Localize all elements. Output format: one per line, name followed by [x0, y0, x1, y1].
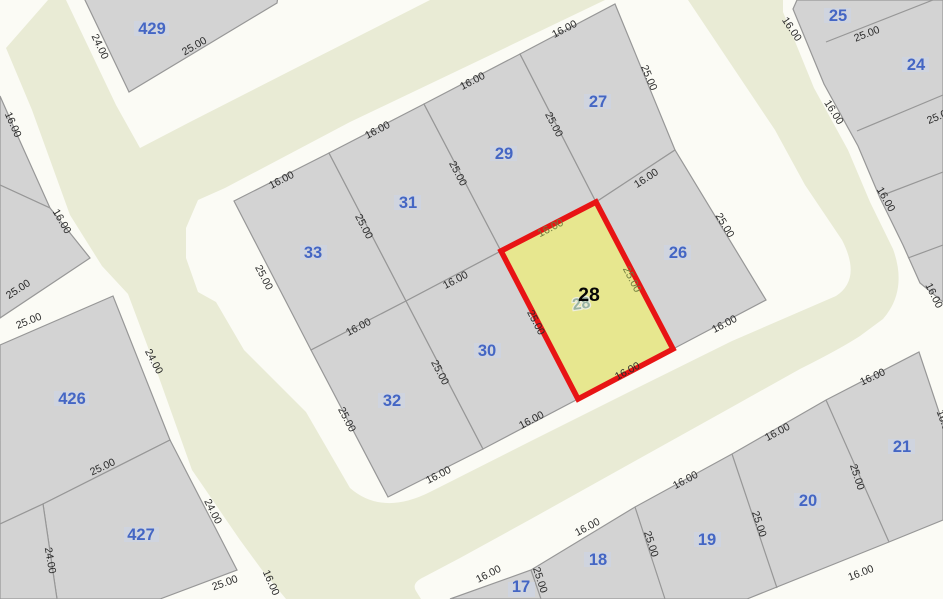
svg-text:19: 19 — [698, 531, 716, 549]
svg-text:24: 24 — [907, 56, 926, 74]
svg-text:28: 28 — [578, 284, 600, 306]
svg-text:17: 17 — [512, 578, 530, 596]
svg-text:25: 25 — [829, 7, 847, 25]
svg-text:18: 18 — [589, 551, 607, 569]
svg-text:33: 33 — [304, 244, 322, 262]
svg-text:20: 20 — [799, 492, 817, 510]
svg-text:427: 427 — [127, 526, 155, 544]
svg-text:426: 426 — [58, 390, 86, 408]
svg-text:32: 32 — [383, 392, 401, 410]
svg-text:21: 21 — [893, 438, 911, 456]
svg-text:30: 30 — [478, 342, 496, 360]
svg-text:31: 31 — [399, 194, 417, 212]
svg-text:26: 26 — [669, 244, 687, 262]
svg-text:429: 429 — [138, 20, 166, 38]
svg-text:27: 27 — [589, 93, 607, 111]
svg-text:29: 29 — [495, 145, 513, 163]
